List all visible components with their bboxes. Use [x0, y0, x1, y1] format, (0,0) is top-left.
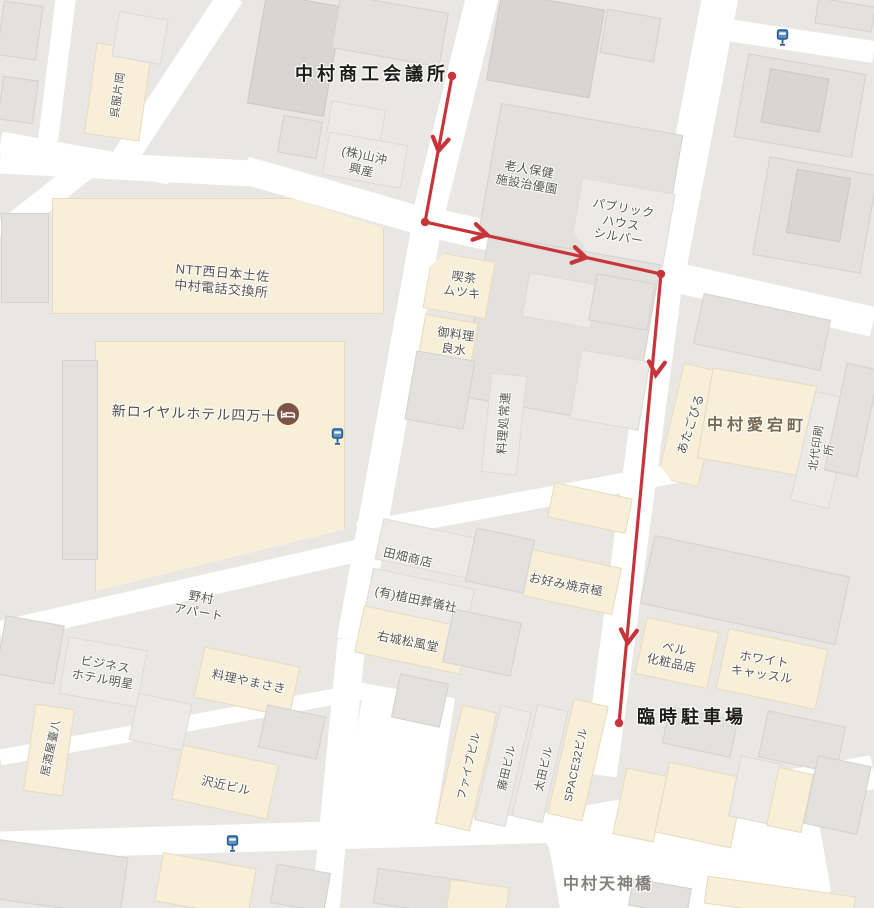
label-gofuku: 呉服片岡 [109, 71, 129, 118]
label-ota: 太田ビル [533, 745, 556, 793]
label-yamasaki: 料理やまさき [211, 667, 287, 697]
label-bell: ベル 化粧品店 [645, 636, 700, 675]
transit-stop-icon[interactable] [226, 835, 239, 857]
label-public-house: パブリック ハウス シルバー [586, 196, 655, 250]
label-chamber: 中村商工会議所 [295, 64, 449, 86]
label-rojin: 老人保健 施設治優園 [495, 157, 562, 197]
label-space32: SPACE32ビル [563, 727, 592, 803]
hotel-bed-icon[interactable] [277, 403, 299, 430]
transit-stop-icon[interactable] [331, 428, 344, 450]
label-parking: 臨時駐車場 [637, 707, 747, 729]
label-kitadai: 北代印刷所 [807, 422, 841, 475]
label-nomura: 野村 アパート [173, 586, 227, 623]
label-ueda: (有)植田葬儀社 [373, 584, 458, 616]
label-izakaya: 居酒屋臺八 [39, 718, 64, 777]
label-white-castle: ホワイト キャッスル [730, 648, 796, 687]
label-okonomiyaki: お好み焼京極 [528, 571, 604, 600]
label-business-hotel: ビジネス ホテル明星 [71, 652, 138, 692]
label-five-building: ファイブビル [456, 731, 485, 801]
transit-stop-icon[interactable] [776, 29, 789, 51]
label-atago-town: 中村愛宕町 [707, 415, 807, 436]
label-oryori: 御料理 良水 [434, 325, 475, 359]
label-ujo: 右城松風堂 [376, 629, 440, 655]
label-atago-building: あたごびる [674, 392, 707, 456]
label-yamaoki: (株)山沖 興産 [337, 144, 389, 182]
label-fujita: 藤田ビル [496, 744, 519, 792]
label-hotel: 新ロイヤルホテル四万十 [111, 403, 276, 426]
label-tabata: 田畑商店 [382, 545, 434, 571]
label-ntt: NTT西日本土佐 中村電話交換所 [174, 261, 271, 301]
label-tenjin-bridge: 中村天神橋 [563, 875, 653, 895]
labels-layer: 呉服片岡中村商工会議所(株)山沖 興産老人保健 施設治優園パブリック ハウス シ… [0, 0, 874, 908]
label-ryori-dokoro: 料理処常連 [495, 391, 514, 454]
map-canvas[interactable]: 呉服片岡中村商工会議所(株)山沖 興産老人保健 施設治優園パブリック ハウス シ… [0, 0, 874, 908]
label-sawachika: 沢近ビル [200, 774, 252, 799]
label-kissa: 喫茶 ムツキ [442, 268, 483, 302]
